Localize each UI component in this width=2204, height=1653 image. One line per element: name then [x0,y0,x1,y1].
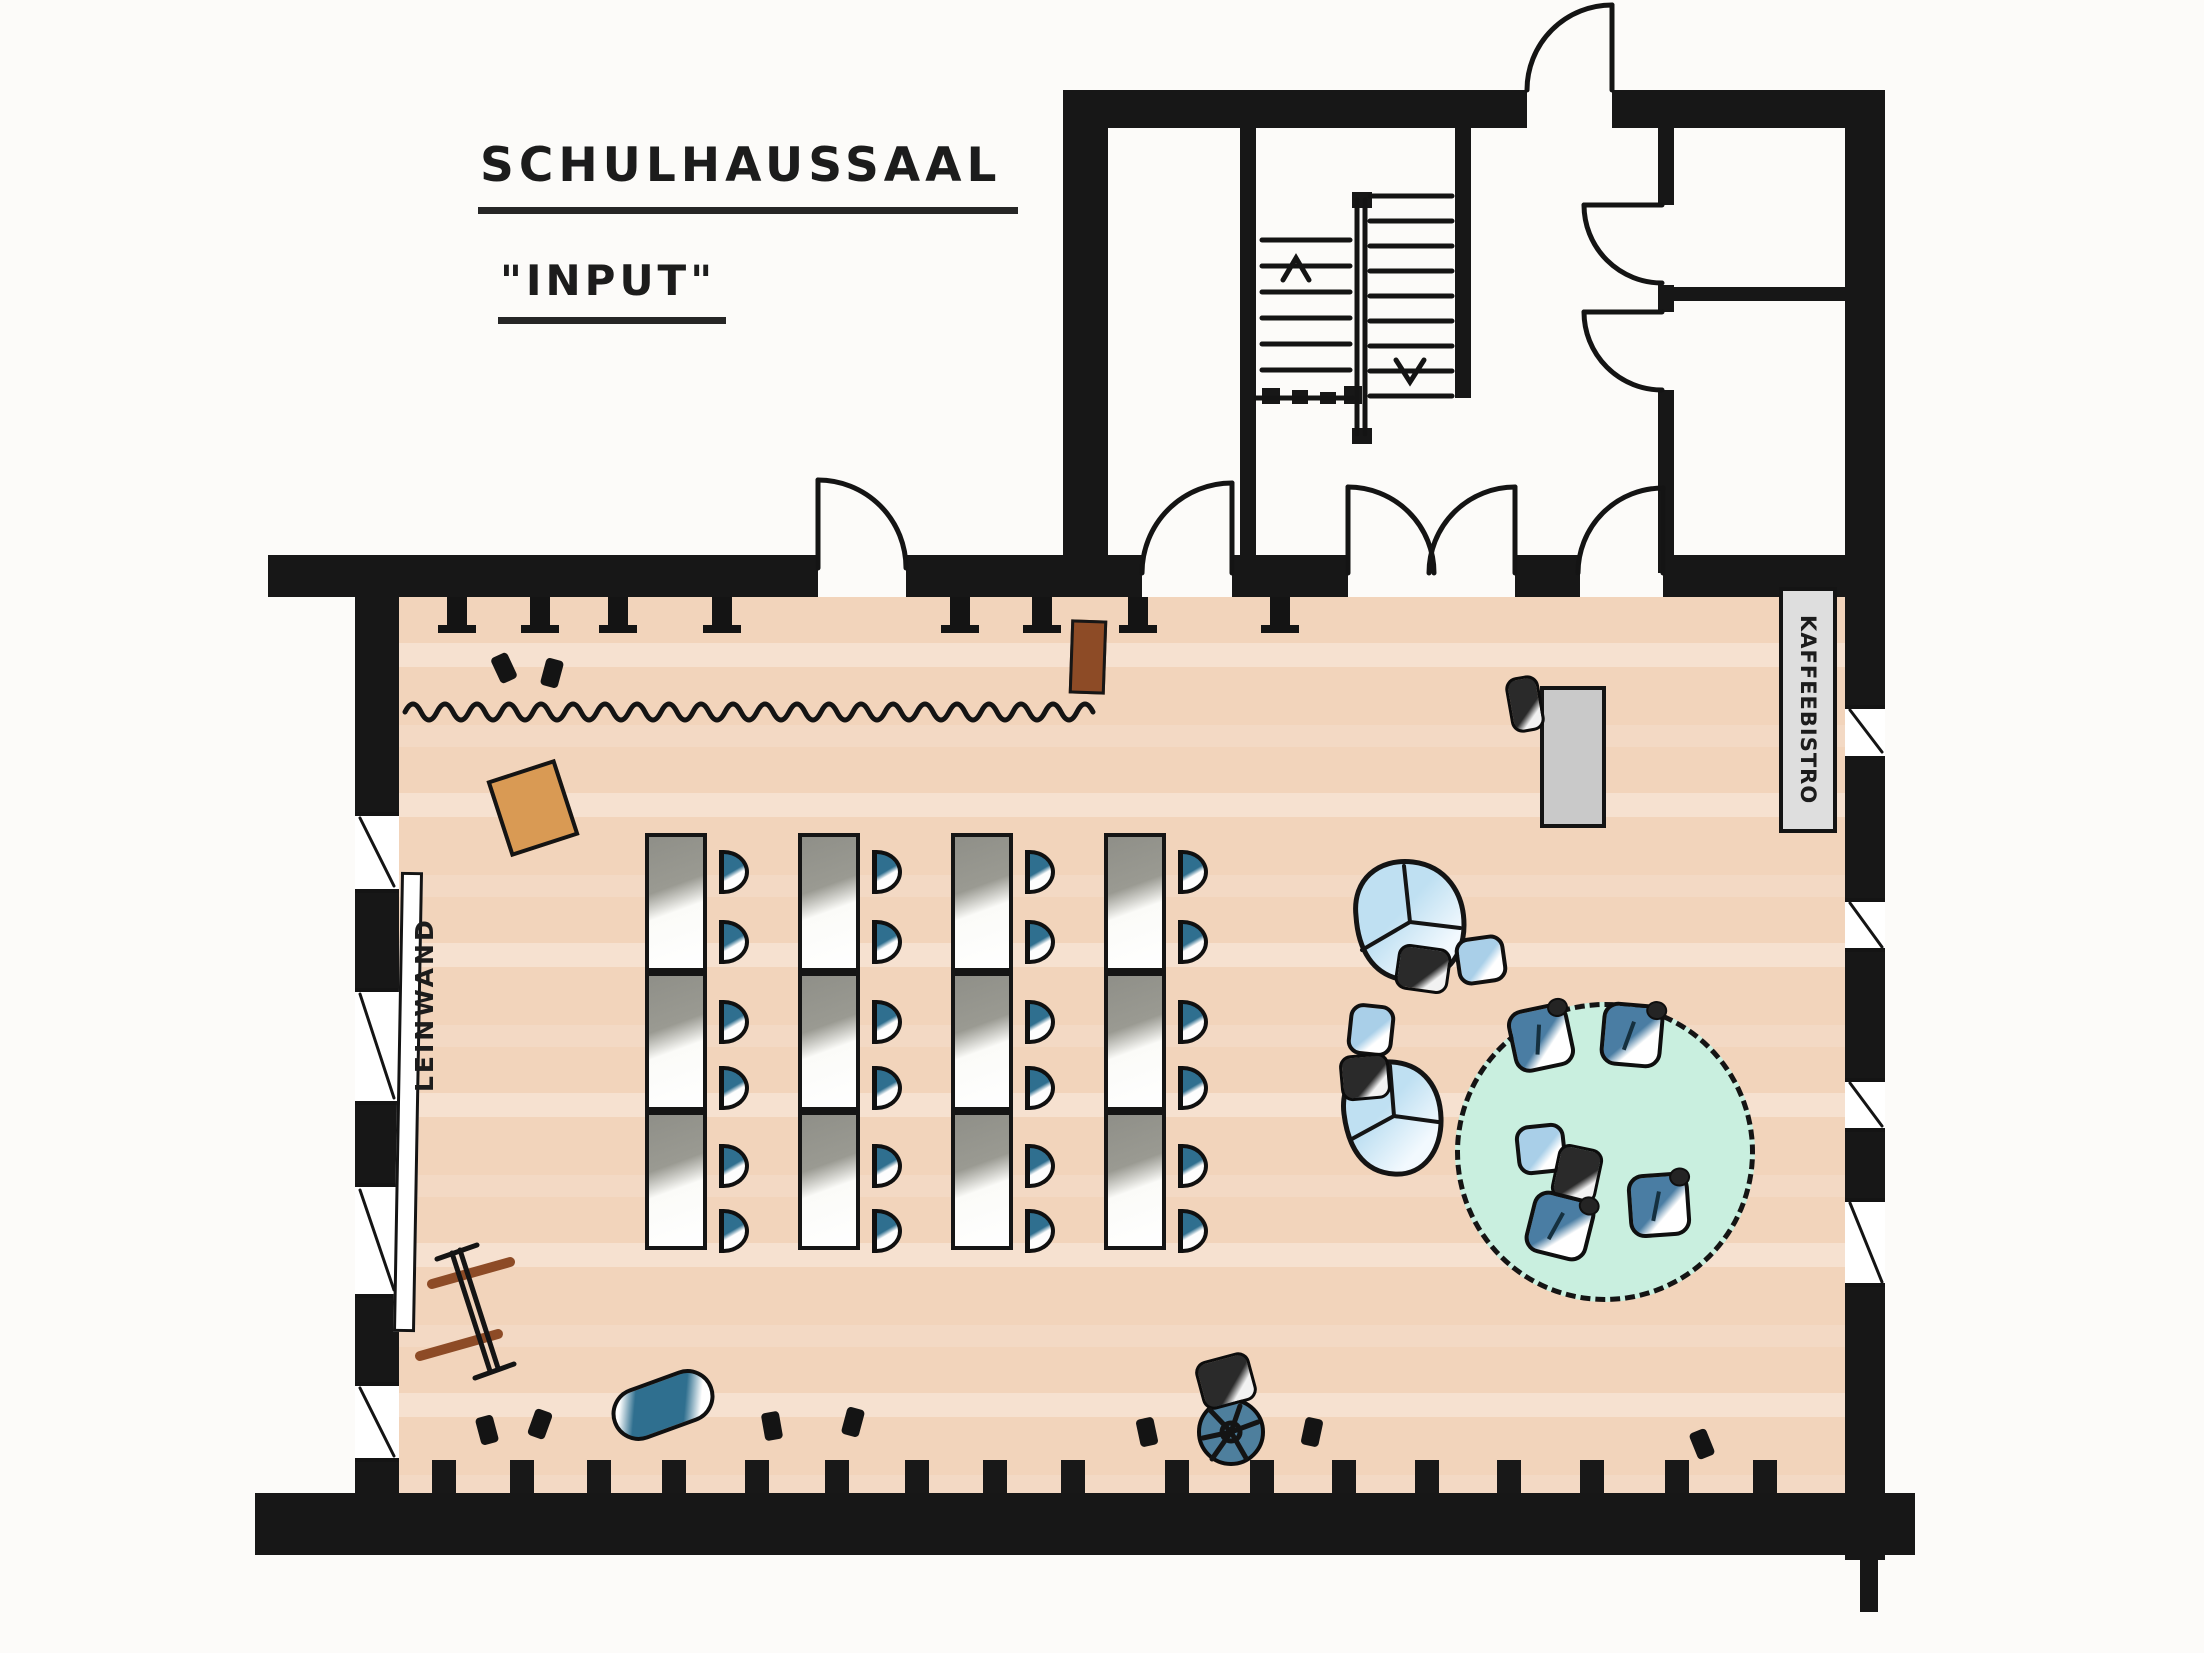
stair-rail [1357,200,1365,434]
page-subtitle: "INPUT" [498,256,726,324]
curtain-squiggle [405,704,1093,720]
door-arc [1584,205,1662,283]
wheel-spokes [1203,1406,1258,1459]
page-title: SCHULHAUSSAAL [478,138,1018,214]
stair-up-arrow [1283,258,1309,280]
coffee-bistro-sign: KAFFEEBISTRO [1779,587,1837,833]
screen-label-text: LEINWAND [410,922,439,1092]
door-arc [1578,488,1663,573]
door-arc [1348,487,1434,573]
coffee-bistro-label-text: KAFFEEBISTRO [1796,615,1820,804]
door-arc [1584,312,1662,390]
screen-label: LEINWAND [410,922,450,1092]
window-glazing [360,818,394,1456]
door-arc [1142,483,1232,573]
door-arc [1429,487,1515,573]
door-arc [818,480,906,568]
door-arc [1527,5,1612,90]
ink-stroke-layer [0,0,2204,1653]
window-glazing [1850,710,1882,1282]
